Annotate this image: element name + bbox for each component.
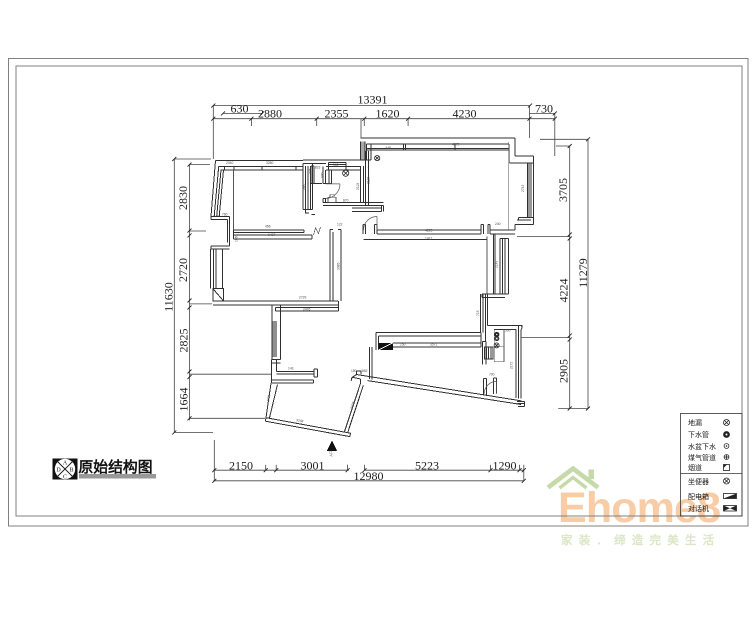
svg-text:水盆下水: 水盆下水	[688, 442, 716, 451]
svg-text:630: 630	[231, 101, 249, 115]
svg-text:13391: 13391	[358, 92, 388, 106]
svg-text:1417: 1417	[425, 236, 433, 240]
svg-text:735: 735	[309, 168, 313, 174]
svg-text:入口: 入口	[329, 450, 333, 457]
svg-text:700: 700	[489, 373, 495, 377]
svg-text:456: 456	[265, 225, 271, 229]
svg-text:1437: 1437	[268, 233, 276, 237]
svg-text:地漏: 地漏	[688, 418, 702, 427]
svg-text:对话机: 对话机	[688, 504, 709, 513]
svg-text:715: 715	[476, 310, 480, 316]
svg-text:450: 450	[303, 184, 307, 190]
svg-text:A: A	[63, 461, 68, 467]
svg-text:1664: 1664	[177, 388, 191, 412]
svg-text:4230: 4230	[453, 107, 477, 121]
svg-text:2040: 2040	[226, 161, 234, 165]
svg-text:11630: 11630	[162, 282, 176, 312]
svg-text:730: 730	[535, 101, 553, 115]
svg-text:2880: 2880	[258, 107, 282, 121]
svg-text:240: 240	[495, 222, 501, 226]
svg-text:烟道: 烟道	[688, 463, 702, 472]
svg-text:配电箱: 配电箱	[688, 492, 709, 501]
svg-text:2115: 2115	[367, 177, 371, 184]
svg-text:2729: 2729	[299, 296, 307, 300]
svg-text:445: 445	[386, 146, 392, 150]
svg-text:2172: 2172	[510, 361, 514, 369]
svg-text:3001: 3001	[301, 458, 325, 472]
svg-text:5223: 5223	[415, 458, 439, 472]
svg-text:2150: 2150	[229, 458, 253, 472]
svg-text:150: 150	[400, 343, 406, 347]
svg-text:2476: 2476	[303, 308, 311, 312]
svg-text:3571: 3571	[430, 343, 438, 347]
svg-text:D: D	[56, 468, 61, 474]
svg-text:3085: 3085	[337, 262, 341, 270]
svg-text:300: 300	[505, 329, 511, 333]
svg-text:11279: 11279	[576, 258, 590, 288]
svg-text:2143: 2143	[495, 260, 499, 268]
svg-text:3705: 3705	[556, 178, 570, 202]
svg-text:下水管: 下水管	[688, 430, 709, 439]
svg-text:4223: 4223	[425, 229, 433, 233]
svg-text:852: 852	[362, 369, 368, 373]
svg-text:900: 900	[333, 163, 339, 167]
svg-text:2825: 2825	[177, 329, 191, 353]
svg-text:2743: 2743	[521, 184, 525, 192]
svg-text:2720: 2720	[176, 258, 190, 282]
svg-text:2830: 2830	[176, 186, 190, 210]
svg-text:原始结构图: 原始结构图	[79, 458, 153, 476]
svg-text:760: 760	[222, 213, 228, 217]
svg-text:150: 150	[351, 369, 357, 373]
svg-text:12980: 12980	[354, 469, 384, 483]
svg-text:3280: 3280	[266, 161, 274, 165]
svg-text:4273: 4273	[452, 143, 460, 147]
svg-text:1060: 1060	[235, 234, 239, 242]
svg-text:坐便器: 坐便器	[688, 477, 709, 486]
svg-text:B: B	[69, 468, 73, 474]
svg-text:2355: 2355	[325, 107, 349, 121]
svg-text:煤气管道: 煤气管道	[688, 453, 716, 462]
svg-text:1620: 1620	[376, 107, 400, 121]
svg-text:1823: 1823	[313, 166, 321, 170]
svg-text:4224: 4224	[557, 279, 571, 303]
svg-text:2115: 2115	[356, 183, 360, 190]
svg-text:家装．缔造完美生活: 家装．缔造完美生活	[561, 533, 720, 547]
svg-text:1290: 1290	[493, 458, 517, 472]
svg-text:2905: 2905	[557, 359, 571, 383]
svg-text:870: 870	[343, 199, 349, 203]
svg-text:143: 143	[288, 367, 294, 371]
svg-text:122: 122	[337, 223, 343, 227]
svg-text:900: 900	[321, 172, 325, 178]
svg-text:C: C	[63, 475, 67, 481]
